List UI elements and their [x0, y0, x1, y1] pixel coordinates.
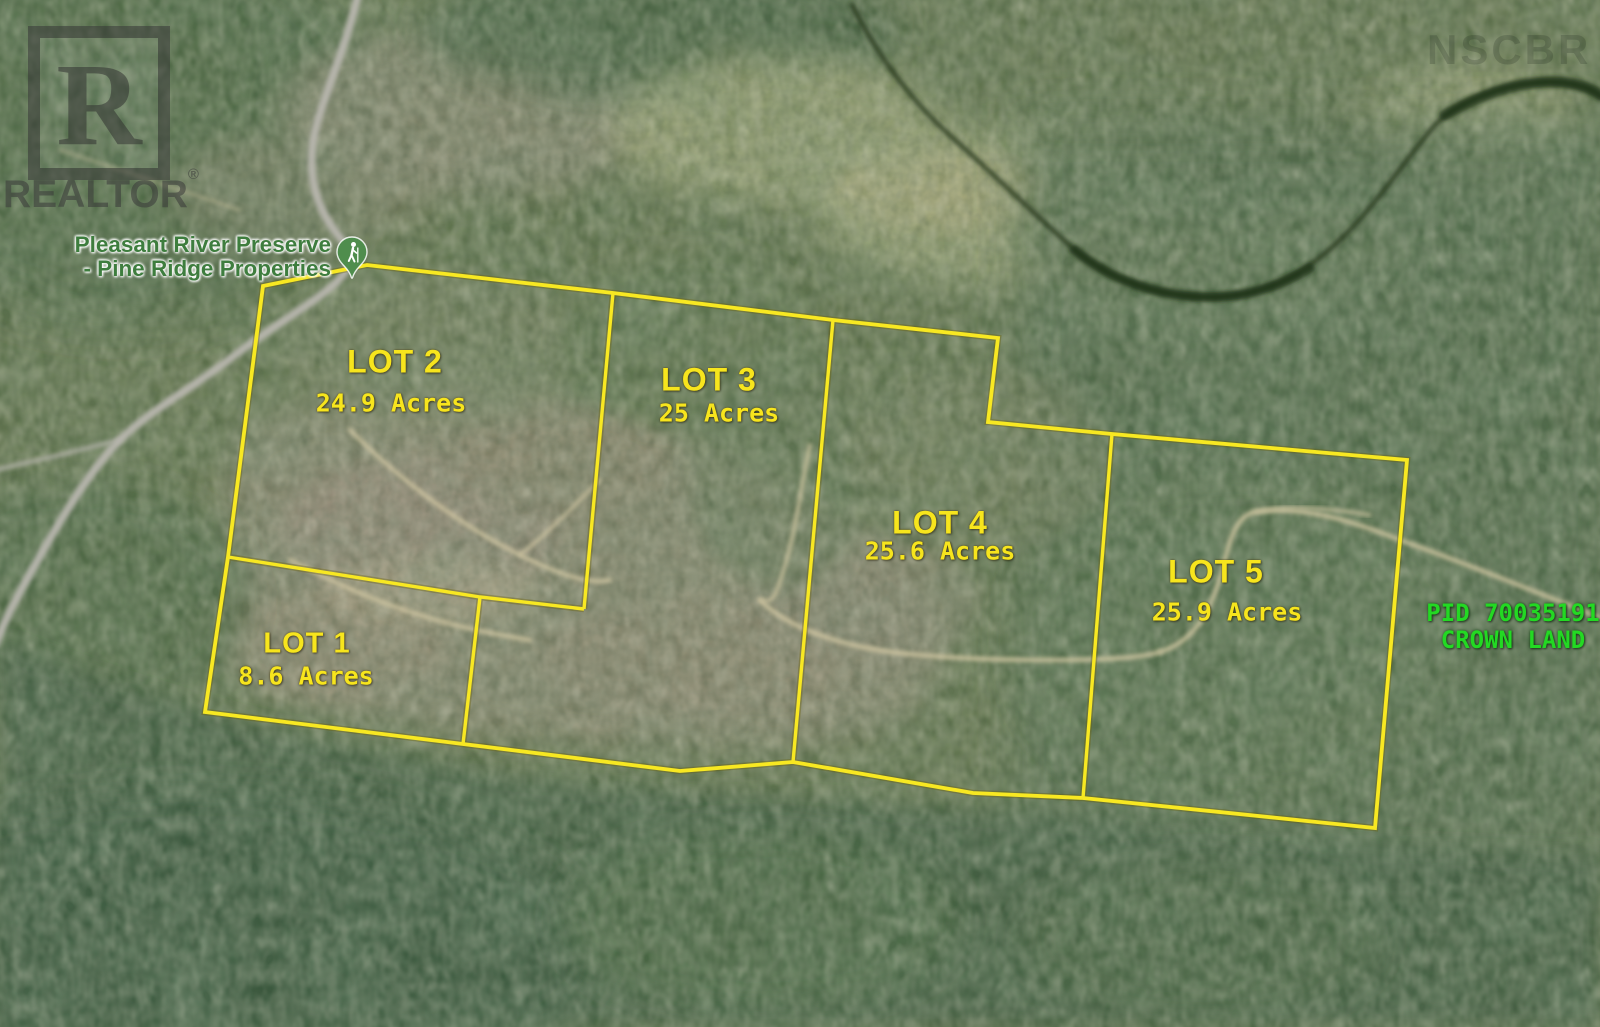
registered-trademark-symbol: ®	[188, 166, 199, 183]
lot-4-acreage: 25.6 Acres	[865, 537, 1016, 566]
lot-5-acreage: 25.9 Acres	[1152, 598, 1303, 627]
preserve-name-line1: Pleasant River Preserve	[75, 233, 331, 257]
lot-2-acreage: 24.9 Acres	[316, 389, 467, 418]
satellite-lot-map: LOT 1 8.6 Acres LOT 2 24.9 Acres LOT 3 2…	[0, 0, 1600, 1027]
lot-3-name: LOT 3	[661, 362, 757, 399]
realtor-logo-box: R	[28, 26, 170, 180]
corner-watermark: NSCBR	[1427, 26, 1591, 74]
lot-2-name: LOT 2	[347, 344, 443, 381]
preserve-name-line2: - Pine Ridge Properties	[75, 257, 331, 281]
satellite-imagery	[0, 0, 1600, 1027]
lot-3-acreage: 25 Acres	[659, 399, 779, 428]
realtor-wordmark-text: REALTOR	[3, 173, 188, 216]
lot-1-name: LOT 1	[263, 628, 350, 661]
adjacent-parcel-label: PID 70035191 CROWN LAND	[1426, 600, 1599, 654]
realtor-wordmark: REALTOR®	[3, 166, 199, 217]
lot-5-name: LOT 5	[1168, 554, 1264, 591]
preserve-name-label: Pleasant River Preserve - Pine Ridge Pro…	[75, 233, 331, 280]
crown-land-label: CROWN LAND	[1426, 627, 1599, 654]
realtor-r-letter: R	[56, 46, 141, 164]
lot-1-acreage: 8.6 Acres	[238, 662, 373, 691]
pid-number: PID 70035191	[1426, 600, 1599, 627]
